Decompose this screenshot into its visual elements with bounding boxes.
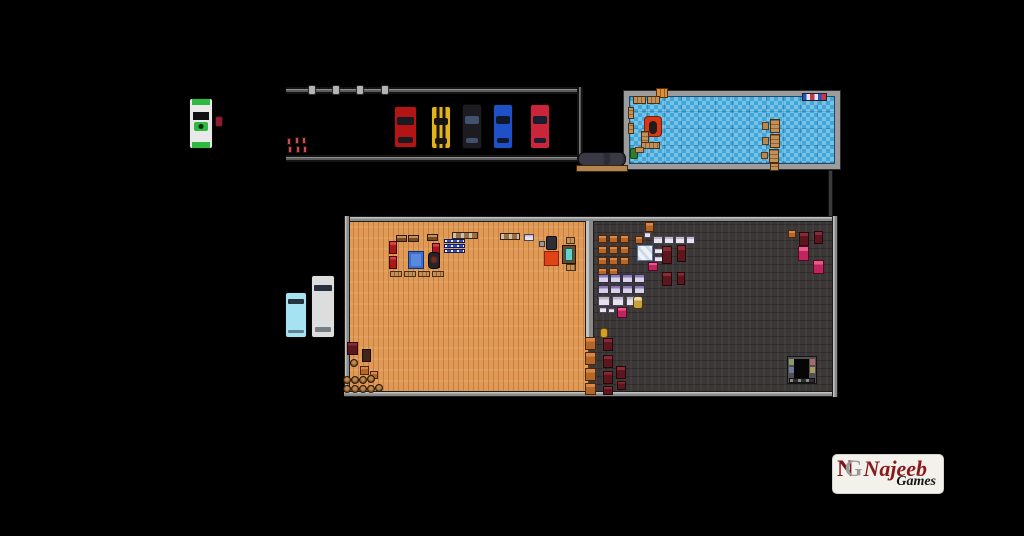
lavender-box — [598, 285, 609, 294]
gold-barrel — [600, 328, 608, 338]
barrel — [359, 385, 367, 393]
red-cabinet — [389, 241, 397, 254]
lounge-chair — [770, 134, 780, 148]
planter-shrubs — [578, 152, 626, 166]
pink-crate — [648, 262, 658, 271]
bench — [566, 264, 576, 271]
lounge-chair — [770, 163, 779, 171]
van-white[interactable] — [311, 275, 335, 338]
windshield — [533, 116, 547, 124]
pool-bar — [802, 93, 827, 101]
car-black-sports[interactable] — [462, 104, 482, 149]
side-table — [761, 152, 768, 159]
crate — [360, 366, 369, 375]
locker — [585, 383, 596, 395]
barrel — [351, 376, 359, 384]
divider-wall — [585, 221, 594, 337]
stove — [428, 252, 440, 269]
rear-window — [534, 138, 547, 144]
dark-door — [347, 342, 358, 355]
barrel — [350, 359, 358, 367]
lavender-box — [634, 285, 645, 294]
rear-window — [466, 138, 479, 144]
quest-marker-icon — [215, 116, 223, 127]
windshield — [465, 116, 479, 124]
car-red-pickup[interactable] — [394, 106, 417, 148]
maroon-locker — [616, 366, 626, 379]
lounge-chair — [628, 107, 634, 119]
white-label — [608, 308, 615, 313]
lavender-box — [598, 274, 609, 283]
lavender-box — [622, 274, 633, 283]
logo-ng-g: G — [845, 456, 863, 481]
game-viewport[interactable]: NGNajeeb Games — [0, 0, 1024, 536]
display-shelf — [444, 249, 465, 253]
van-cyan[interactable] — [285, 292, 307, 338]
crate — [598, 257, 607, 265]
lavender-box — [622, 285, 633, 294]
crate — [620, 235, 629, 243]
locker — [585, 337, 596, 350]
pink-machine — [798, 246, 809, 261]
maroon-locker — [617, 381, 626, 390]
maroon-locker — [677, 245, 686, 262]
rear-window — [288, 330, 303, 334]
bench — [418, 271, 430, 277]
barrel — [375, 384, 383, 392]
maroon-locker — [814, 231, 823, 244]
crate — [620, 257, 629, 265]
windshield — [314, 285, 333, 292]
wall-stud — [356, 85, 364, 95]
lounge-chair — [628, 123, 634, 134]
windshield — [397, 117, 414, 125]
garage-wall-top — [286, 87, 583, 94]
blue-rug-inner — [411, 254, 421, 266]
crate — [598, 246, 607, 254]
bench — [432, 271, 444, 277]
lounge-chair — [769, 149, 779, 163]
player-car-part — [192, 99, 211, 105]
station-icon — [789, 359, 794, 365]
display-shelf — [444, 244, 465, 248]
car-blue-sports[interactable] — [493, 104, 513, 149]
rear-window — [497, 138, 510, 144]
bench — [390, 271, 402, 277]
maroon-locker — [603, 338, 613, 351]
small-item — [296, 146, 300, 153]
station-icon — [810, 367, 815, 373]
building-wall-right — [832, 216, 838, 397]
car-red-sports[interactable] — [530, 104, 550, 149]
crate — [788, 230, 796, 238]
dark-crate — [362, 349, 371, 362]
red-rug — [544, 251, 559, 266]
lounge-chair — [647, 96, 660, 104]
connector-wall — [828, 170, 833, 218]
display-shelf — [444, 239, 465, 243]
white-cabinet — [686, 236, 695, 244]
small-item — [303, 146, 307, 153]
maroon-locker — [662, 246, 672, 264]
maroon-locker — [603, 386, 613, 395]
white-cabinet — [653, 236, 663, 244]
pink-crate — [617, 307, 627, 318]
lavender-box — [610, 285, 621, 294]
windshield — [496, 116, 510, 124]
maroon-locker — [603, 371, 613, 384]
mattress — [637, 245, 653, 261]
shelf — [408, 235, 419, 242]
small-item — [302, 137, 306, 144]
crate — [645, 222, 654, 232]
player-car-part — [192, 142, 211, 148]
gray-stool — [539, 241, 545, 247]
maroon-locker — [662, 272, 672, 286]
maroon-locker — [677, 272, 685, 285]
maroon-locker — [799, 232, 809, 246]
shelf — [427, 234, 438, 241]
lounge-chair — [633, 96, 646, 104]
barrel — [367, 375, 375, 383]
red-cabinet — [389, 256, 397, 269]
small-item — [288, 146, 292, 153]
sink — [524, 234, 534, 241]
building-wall-left — [344, 216, 350, 397]
white-label — [599, 307, 607, 313]
white-cabinet — [598, 296, 610, 306]
white-cabinet — [612, 296, 624, 306]
side-table — [762, 122, 769, 130]
station-icon — [810, 359, 815, 365]
locker — [585, 368, 596, 381]
wall-stud — [332, 85, 340, 95]
locker — [585, 352, 596, 365]
bench — [404, 271, 416, 277]
wall-stud — [308, 85, 316, 95]
swimmer-npc[interactable] — [649, 121, 657, 134]
station-icon — [789, 367, 794, 373]
tv-screen — [565, 248, 573, 261]
small-item — [287, 138, 291, 145]
white-cabinet — [644, 232, 651, 238]
crate — [609, 257, 618, 265]
windshield — [288, 299, 305, 304]
dark-armchair — [546, 236, 557, 250]
rear-window — [315, 327, 332, 332]
player-car-part — [193, 112, 209, 120]
player-car[interactable] — [189, 98, 213, 149]
side-table — [762, 137, 769, 145]
counter-items — [452, 232, 478, 239]
rear-window — [398, 137, 413, 142]
pink-machine — [813, 260, 824, 274]
racing-stripes — [432, 107, 450, 148]
lounge-chair — [770, 119, 780, 133]
barrel — [351, 385, 359, 393]
player-car-part — [194, 122, 208, 131]
station-dash — [789, 378, 815, 383]
barrel — [343, 376, 351, 384]
maroon-locker — [603, 355, 613, 368]
shelf — [396, 235, 407, 242]
lavender-box — [634, 274, 645, 283]
garage-wall-bottom — [286, 155, 583, 162]
garage-wall-right — [577, 87, 583, 162]
white-cabinet — [664, 236, 674, 244]
barrel — [367, 385, 375, 393]
bench — [566, 237, 575, 244]
pool-deco — [635, 147, 644, 153]
crate — [598, 235, 607, 243]
crate — [635, 236, 643, 244]
crate — [609, 246, 618, 254]
car-yellow-striped[interactable] — [431, 106, 451, 149]
barrel — [343, 385, 351, 393]
small-item — [295, 137, 299, 144]
planter-base — [576, 165, 628, 172]
station-hole — [794, 359, 809, 378]
wall-stud — [381, 85, 389, 95]
crate — [609, 235, 618, 243]
logo-sub-text: Games — [896, 474, 936, 490]
counter-items — [500, 233, 520, 240]
barrel — [359, 376, 367, 384]
npc-figure[interactable] — [633, 296, 643, 309]
lavender-box — [610, 274, 621, 283]
najeeb-games-logo: NGNajeeb Games — [832, 454, 944, 494]
crate — [620, 246, 629, 254]
white-cabinet — [675, 236, 685, 244]
